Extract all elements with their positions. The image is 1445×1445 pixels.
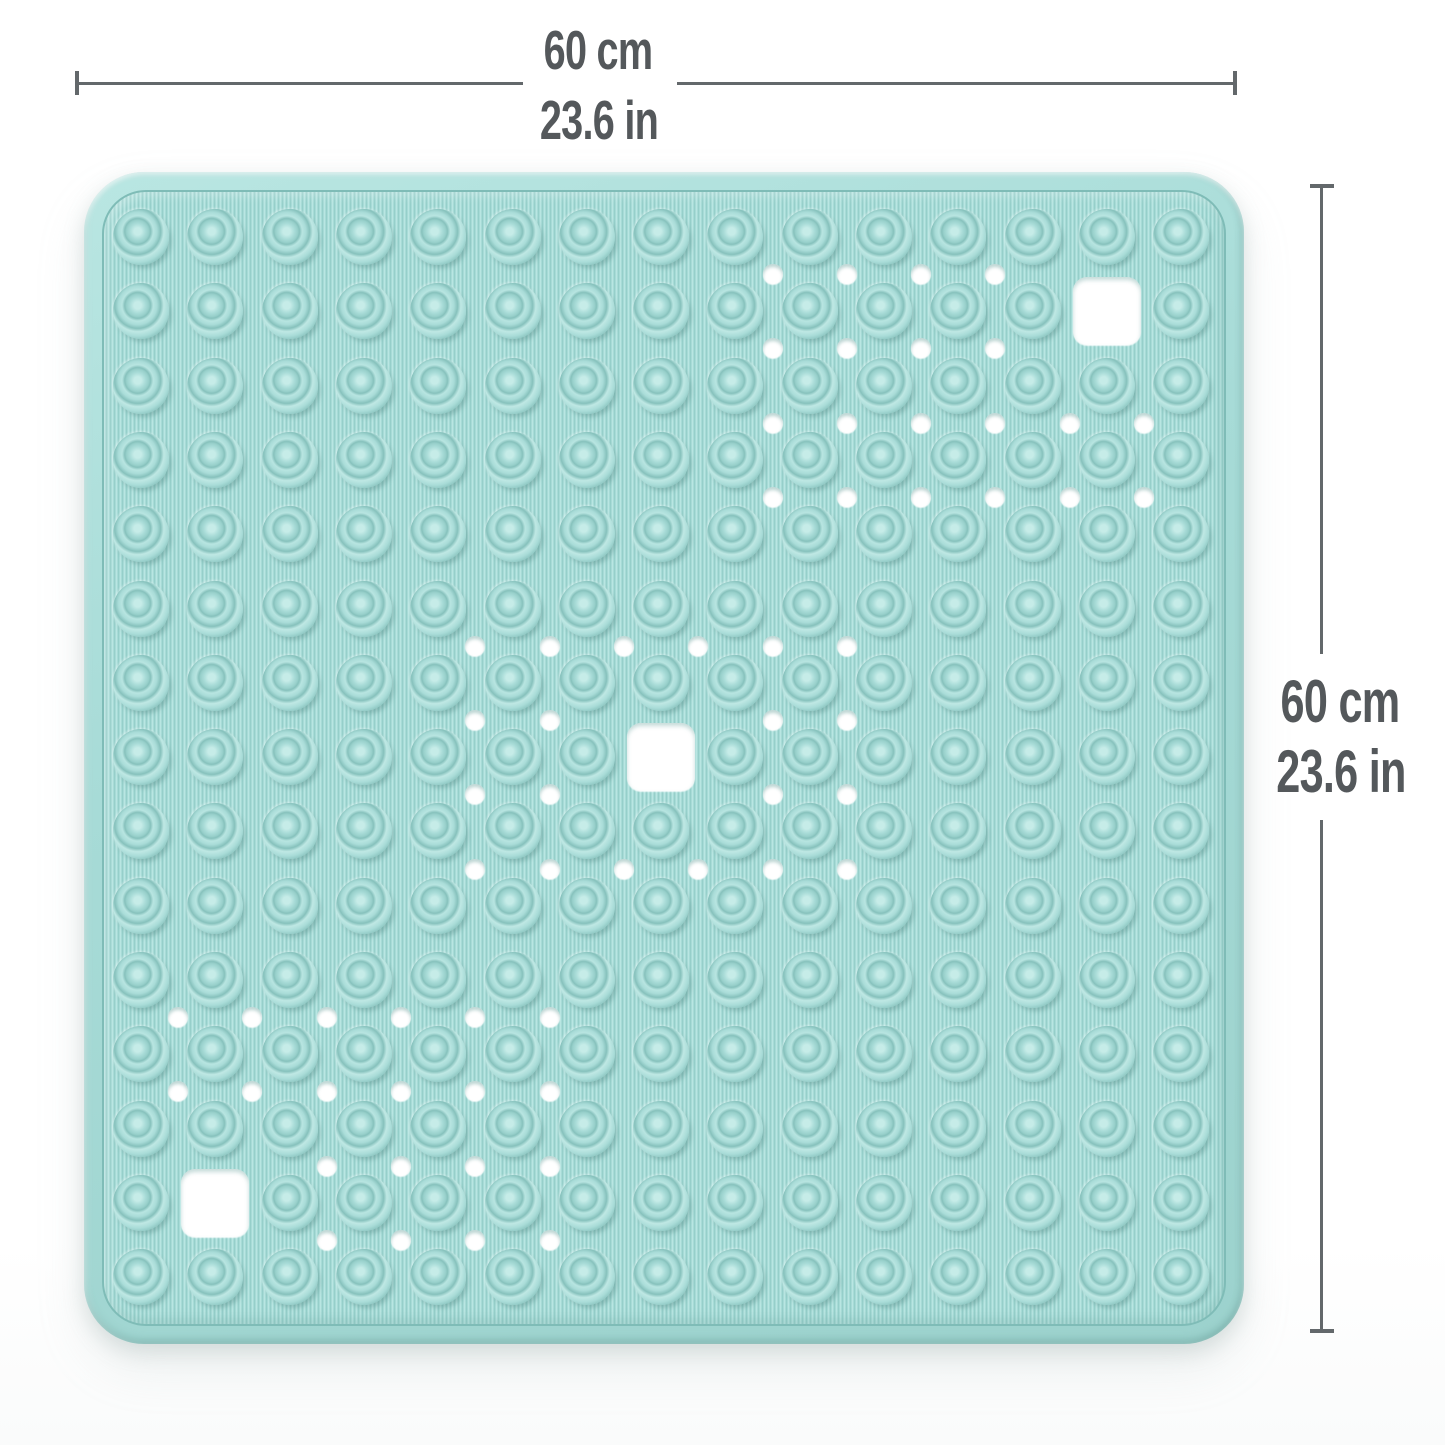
width-line-left — [77, 82, 523, 85]
width-in-label: 23.6 in — [520, 92, 678, 148]
width-tick-right — [1233, 71, 1237, 95]
mat-ribbed-surface — [102, 190, 1226, 1326]
height-line-top — [1320, 188, 1323, 654]
height-tick-bottom — [1310, 1329, 1334, 1333]
height-cm-label: 60 cm — [1261, 672, 1419, 732]
product-image: 60 cm 23.6 in 60 cm 23.6 in — [0, 0, 1445, 1445]
width-line-right — [677, 82, 1237, 85]
height-in-label: 23.6 in — [1262, 742, 1420, 802]
height-line-bottom — [1320, 820, 1323, 1331]
width-cm-label: 60 cm — [519, 22, 677, 78]
bath-mat — [84, 172, 1244, 1344]
